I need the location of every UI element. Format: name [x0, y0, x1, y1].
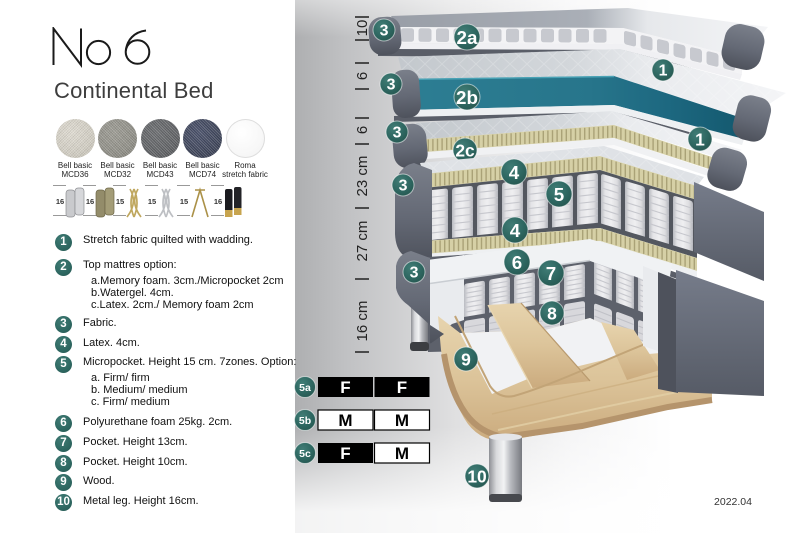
- svg-text:10: 10: [467, 466, 486, 486]
- svg-text:3: 3: [410, 265, 419, 282]
- svg-text:4: 4: [509, 162, 520, 183]
- svg-text:4: 4: [510, 220, 521, 241]
- svg-text:5: 5: [554, 184, 564, 205]
- svg-text:M: M: [395, 411, 409, 430]
- svg-text:2c: 2c: [455, 140, 475, 160]
- svg-text:5c: 5c: [299, 448, 311, 460]
- svg-text:8: 8: [547, 303, 557, 323]
- svg-text:2a: 2a: [457, 27, 478, 48]
- svg-text:1: 1: [659, 63, 668, 80]
- svg-text:M: M: [395, 444, 409, 463]
- svg-text:16 cm: 16 cm: [354, 301, 371, 342]
- svg-text:3: 3: [393, 125, 402, 142]
- svg-text:3: 3: [380, 23, 389, 40]
- svg-text:6: 6: [512, 252, 522, 273]
- svg-text:F: F: [340, 378, 350, 397]
- svg-text:23 cm: 23 cm: [354, 156, 371, 197]
- svg-text:3: 3: [399, 178, 408, 195]
- svg-text:F: F: [397, 378, 407, 397]
- svg-text:1: 1: [695, 129, 705, 149]
- svg-text:9: 9: [461, 349, 471, 369]
- svg-text:7: 7: [546, 263, 556, 284]
- svg-text:3: 3: [387, 77, 396, 94]
- svg-text:6: 6: [354, 126, 371, 134]
- svg-text:10: 10: [354, 20, 371, 37]
- svg-text:F: F: [340, 444, 350, 463]
- svg-text:5a: 5a: [299, 382, 311, 394]
- svg-text:5b: 5b: [299, 415, 311, 427]
- svg-text:2b: 2b: [456, 87, 478, 108]
- svg-text:M: M: [338, 411, 352, 430]
- svg-text:27 cm: 27 cm: [354, 221, 371, 262]
- svg-text:6: 6: [354, 72, 371, 80]
